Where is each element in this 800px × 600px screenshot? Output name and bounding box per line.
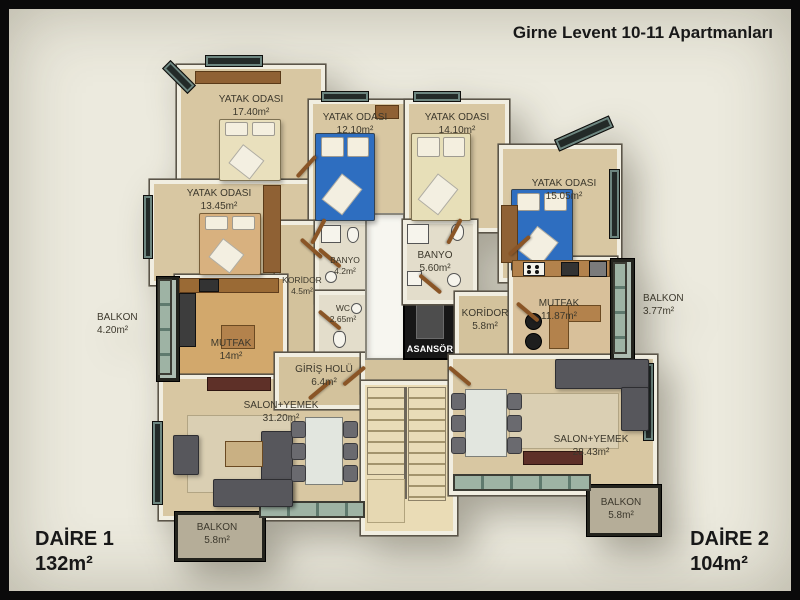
apartment-1-label: DAİRE 1 132m² xyxy=(35,527,114,577)
pillow xyxy=(205,216,229,230)
armchair-d1 xyxy=(173,435,199,475)
room-label-d1-balcony-bottom: BALKON 5.8m² xyxy=(157,521,277,547)
stove-icon xyxy=(523,262,545,276)
chair xyxy=(451,437,466,454)
chair xyxy=(507,437,522,454)
room-label-d2-bedroom-1: YATAK ODASI 14.10m² xyxy=(397,111,517,137)
room-label-d1-wc: WC 2.65m² xyxy=(303,303,383,325)
toilet-icon xyxy=(347,227,359,243)
pillow xyxy=(252,122,276,136)
window xyxy=(413,91,461,102)
stair-flight-right xyxy=(408,387,446,501)
stair-flight-left xyxy=(367,387,405,475)
staircase xyxy=(361,381,457,535)
room-label-d2-balcony-right: BALKON 3.77m² xyxy=(643,292,713,318)
chair xyxy=(507,393,522,410)
stove-icon xyxy=(199,279,219,292)
double-bed-d1-bedroom-3 xyxy=(315,133,375,221)
floor-plan: ASANSÖR xyxy=(9,9,791,591)
sofa-d2 xyxy=(555,359,649,389)
room-label-d2-living: SALON+YEMEK 28.43m² xyxy=(531,433,651,459)
room-label-d1-living: SALON+YEMEK 31.20m² xyxy=(221,399,341,425)
chair xyxy=(291,443,306,460)
double-bed-d1-bedroom-1 xyxy=(219,119,281,181)
pillow xyxy=(225,122,249,136)
chair xyxy=(525,333,542,350)
room-label-d1-bedroom-1: YATAK ODASI 17.40m² xyxy=(191,93,311,119)
elevator-label: ASANSÖR xyxy=(405,344,455,354)
window xyxy=(205,55,263,67)
room-label-d2-balcony-bottom: BALKON 5.8m² xyxy=(561,496,681,522)
toilet-icon xyxy=(333,331,346,348)
chair xyxy=(451,393,466,410)
room-label-d2-bathroom: BANYO 5.60m² xyxy=(375,249,495,275)
shower-icon xyxy=(407,224,429,244)
sink-icon xyxy=(561,262,579,276)
coffee-table-d1 xyxy=(225,441,263,467)
tv-console-d1 xyxy=(207,377,271,391)
shower-icon xyxy=(321,225,341,243)
room-label-d1-corridor: KORİDOR 4.5m² xyxy=(262,275,342,297)
room-label-d1-entry-hall: GİRİŞ HOLÜ 6.4m² xyxy=(264,363,384,389)
pillow xyxy=(321,137,344,156)
chair xyxy=(343,465,358,482)
chair xyxy=(507,415,522,432)
pillow xyxy=(443,137,466,156)
room-label-d1-balcony-left: BALKON 4.20m² xyxy=(97,311,167,337)
sofa-d2 xyxy=(621,387,649,431)
blanket xyxy=(229,145,265,180)
pillow xyxy=(232,216,256,230)
window xyxy=(152,421,163,505)
chair xyxy=(343,421,358,438)
light-well xyxy=(365,213,405,360)
page-title: Girne Levent 10-11 Apartmanları xyxy=(513,23,773,43)
room-label-d1-bedroom-2: YATAK ODASI 13.45m² xyxy=(159,187,279,213)
room-label-d2-kitchen: MUTFAK 11.87m² xyxy=(499,297,619,323)
floor-plan-page: Girne Levent 10-11 Apartmanları ASANSÖR xyxy=(0,0,800,600)
blanket xyxy=(417,174,458,216)
chair xyxy=(291,465,306,482)
double-bed-d1-bedroom-2 xyxy=(199,213,261,275)
room-label-d1-kitchen: MUTFAK 14m² xyxy=(171,337,291,363)
room-label-d1-bathroom: BANYO 4.2m² xyxy=(305,255,385,277)
glass-band-d2 xyxy=(453,474,591,491)
dining-table-d2 xyxy=(465,389,507,457)
window xyxy=(143,195,153,259)
double-bed-d2-bedroom-1 xyxy=(411,133,471,221)
wardrobe xyxy=(195,71,281,84)
pillow xyxy=(347,137,370,156)
fridge-icon xyxy=(589,261,607,277)
sink-icon xyxy=(447,273,461,287)
stair-landing xyxy=(367,479,405,523)
pillow xyxy=(417,137,440,156)
chair xyxy=(451,415,466,432)
room-label-d2-bedroom-2: YATAK ODASI 15.05m² xyxy=(504,177,624,203)
blanket xyxy=(321,174,362,216)
chair xyxy=(343,443,358,460)
apartment-2-label: DAİRE 2 104m² xyxy=(690,527,769,577)
sofa-d1 xyxy=(213,479,293,507)
dining-table-d1 xyxy=(305,417,343,485)
blanket xyxy=(209,239,245,274)
window xyxy=(321,91,369,102)
